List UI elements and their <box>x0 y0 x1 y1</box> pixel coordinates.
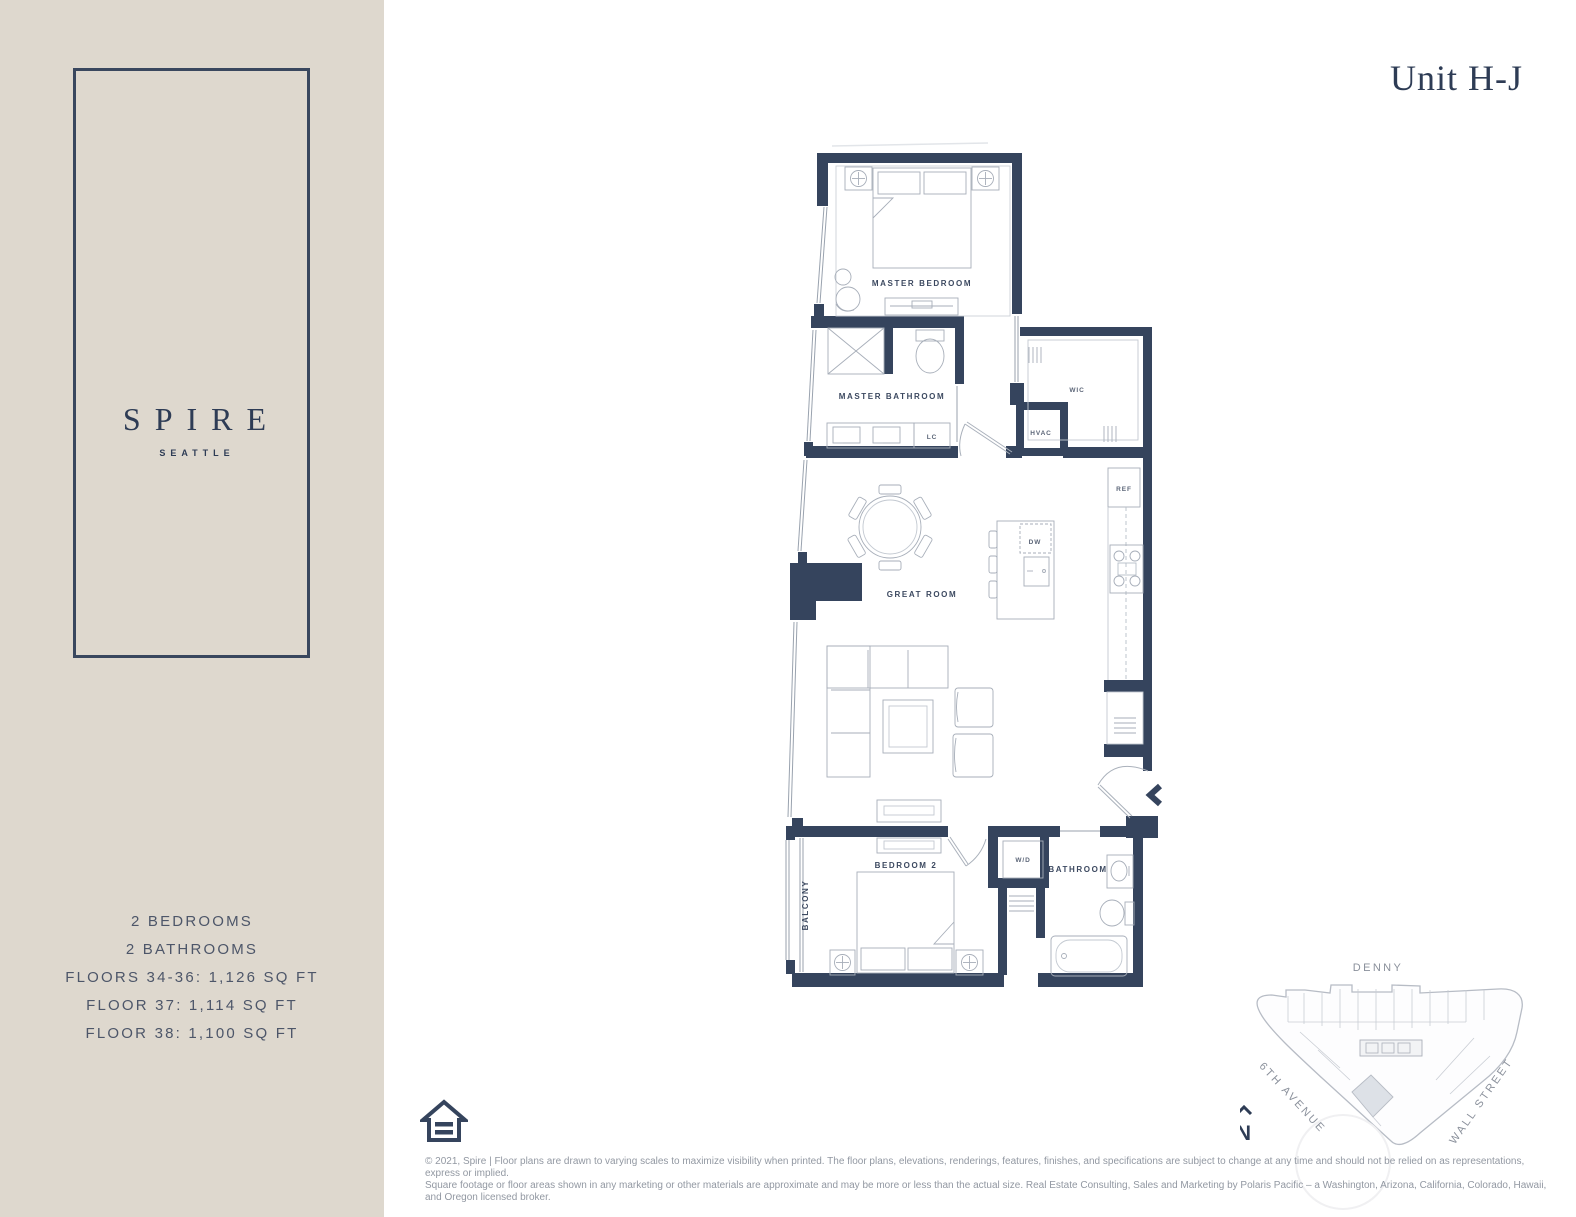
fact-sqft-34-36: FLOORS 34-36: 1,126 SQ FT <box>0 964 384 992</box>
bath2-toilet <box>1100 900 1124 926</box>
coffee-table <box>883 700 933 753</box>
brand-city: SEATTLE <box>76 448 313 458</box>
equal-housing-icon <box>420 1097 468 1145</box>
roof-line <box>832 143 988 146</box>
accent-chair <box>953 734 993 777</box>
disclaimer-line-2: Square footage or floor areas shown in a… <box>425 1180 1550 1192</box>
compass-arrow-icon <box>1240 1107 1251 1114</box>
logo-frame: SPIRE SEATTLE <box>73 68 310 658</box>
fact-sqft-38: FLOOR 38: 1,100 SQ FT <box>0 1020 384 1048</box>
dining-chair <box>879 561 901 570</box>
mb-rug <box>836 166 1010 316</box>
dining-chair <box>879 485 901 494</box>
flyer-page: SPIRE SEATTLE 2 BEDROOMS 2 BATHROOMS FLO… <box>0 0 1576 1217</box>
label-bedroom2: BEDROOM 2 <box>875 861 938 870</box>
sofa-top <box>827 646 948 688</box>
bedroom2-dresser <box>877 838 941 853</box>
stool <box>989 556 997 573</box>
mb-chair <box>836 287 860 311</box>
floorplan: MASTER BEDROOM MASTER BATHROOM WIC HVAC … <box>780 140 1180 1010</box>
disclaimer: © 2021, Spire | Floor plans are drawn to… <box>425 1156 1550 1204</box>
page-title: Unit H-J <box>1390 57 1523 99</box>
sofa-left <box>827 646 870 777</box>
brand-name: SPIRE <box>76 401 313 438</box>
label-hvac: HVAC <box>1030 430 1052 437</box>
console-table <box>877 800 941 822</box>
compass-n-label: N <box>1240 1122 1252 1145</box>
label-lc: LC <box>927 434 937 441</box>
sidebar: SPIRE SEATTLE 2 BEDROOMS 2 BATHROOMS FLO… <box>0 0 384 1217</box>
dining-table <box>859 496 921 558</box>
label-dw: DW <box>1029 539 1042 546</box>
elevator-core <box>1360 1040 1422 1056</box>
disclaimer-line-1: © 2021, Spire | Floor plans are drawn to… <box>425 1156 1550 1180</box>
street-denny: DENNY <box>1353 962 1404 974</box>
unit-facts: 2 BEDROOMS 2 BATHROOMS FLOORS 34-36: 1,1… <box>0 908 384 1048</box>
brand-logo: SPIRE SEATTLE <box>76 401 313 458</box>
building-outline <box>1257 985 1522 1144</box>
fact-sqft-37: FLOOR 37: 1,114 SQ FT <box>0 992 384 1020</box>
label-wic: WIC <box>1069 387 1084 394</box>
entry-arrow-icon <box>1150 786 1160 804</box>
bedroom2-bed <box>857 872 954 973</box>
label-balcony: BALCONY <box>801 880 810 931</box>
label-master-bedroom: MASTER BEDROOM <box>872 279 972 288</box>
mb-side-table <box>835 269 851 285</box>
stool <box>989 531 997 548</box>
label-master-bathroom: MASTER BATHROOM <box>839 392 946 401</box>
mb-dresser <box>885 298 958 315</box>
fact-bathrooms: 2 BATHROOMS <box>0 936 384 964</box>
label-bathroom: BATHROOM <box>1048 865 1107 874</box>
site-map: DENNY 6TH AVENUE WALL STREET N <box>1240 940 1560 1160</box>
disclaimer-line-3: and Oregon licensed broker. <box>425 1192 1550 1204</box>
accent-chair <box>955 688 993 727</box>
fact-bedrooms: 2 BEDROOMS <box>0 908 384 936</box>
label-wd: W/D <box>1015 857 1030 864</box>
label-great-room: GREAT ROOM <box>887 590 958 599</box>
stool <box>989 581 997 598</box>
mb-bed <box>873 168 971 268</box>
label-ref: REF <box>1116 486 1132 493</box>
mb-toilet <box>916 339 944 373</box>
